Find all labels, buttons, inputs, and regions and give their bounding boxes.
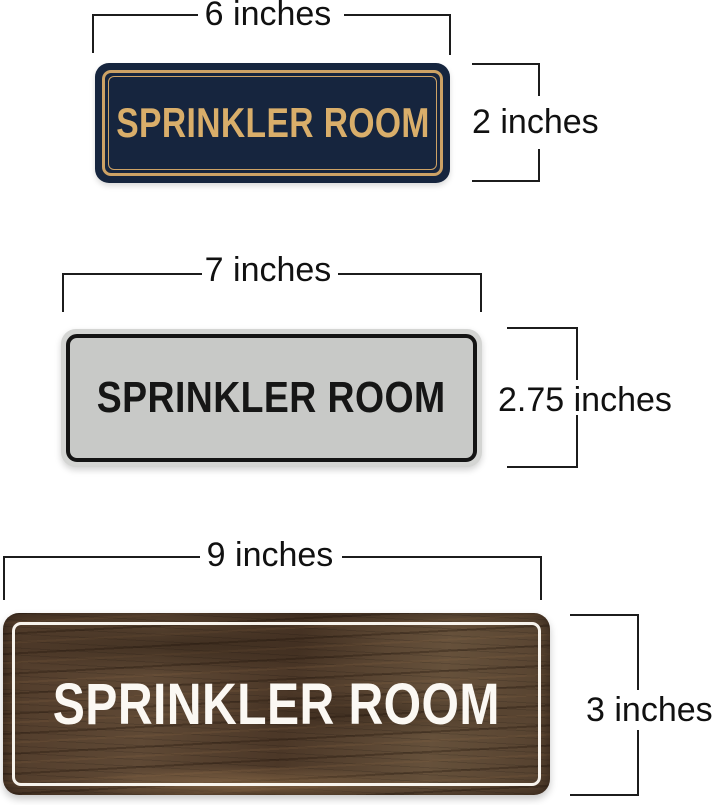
height-dimension-bracket-bottom-silver: [507, 415, 578, 468]
width-dimension-bracket-left-navy: [92, 14, 198, 53]
width-dimension-bracket-right-silver: [338, 273, 482, 312]
sign-text: SPRINKLER ROOM: [53, 671, 500, 738]
height-dimension-bracket-top-silver: [507, 327, 578, 380]
width-dimension-label-silver: 7 inches: [188, 252, 348, 288]
width-dimension-label-navy: 6 inches: [188, 0, 348, 32]
width-dimension-bracket-left-silver: [62, 273, 202, 312]
sign-text: SPRINKLER ROOM: [116, 99, 430, 147]
navy-gold-sign: SPRINKLER ROOM: [95, 63, 450, 183]
width-dimension-label-wood: 9 inches: [190, 537, 350, 573]
height-dimension-label-navy: 2 inches: [472, 104, 599, 140]
height-dimension-bracket-top-wood: [570, 614, 639, 690]
width-dimension-bracket-right-wood: [342, 556, 542, 600]
sign-text: SPRINKLER ROOM: [97, 373, 446, 423]
white-border-panel: SPRINKLER ROOM: [12, 622, 541, 786]
walnut-wood-sign: SPRINKLER ROOM: [3, 613, 550, 795]
height-dimension-bracket-top-navy: [472, 63, 540, 96]
height-dimension-bracket-bottom-wood: [570, 730, 639, 796]
black-border-panel: SPRINKLER ROOM: [66, 334, 477, 462]
height-dimension-label-wood: 3 inches: [586, 692, 713, 728]
height-dimension-label-silver: 2.75 inches: [498, 382, 672, 418]
height-dimension-bracket-bottom-navy: [472, 149, 540, 182]
width-dimension-bracket-left-wood: [3, 556, 200, 600]
product-dimensions-image: 6 inches SPRINKLER ROOM 2 inches 7 inche…: [0, 0, 722, 805]
width-dimension-bracket-right-navy: [344, 14, 451, 55]
silver-black-sign: SPRINKLER ROOM: [61, 329, 482, 467]
